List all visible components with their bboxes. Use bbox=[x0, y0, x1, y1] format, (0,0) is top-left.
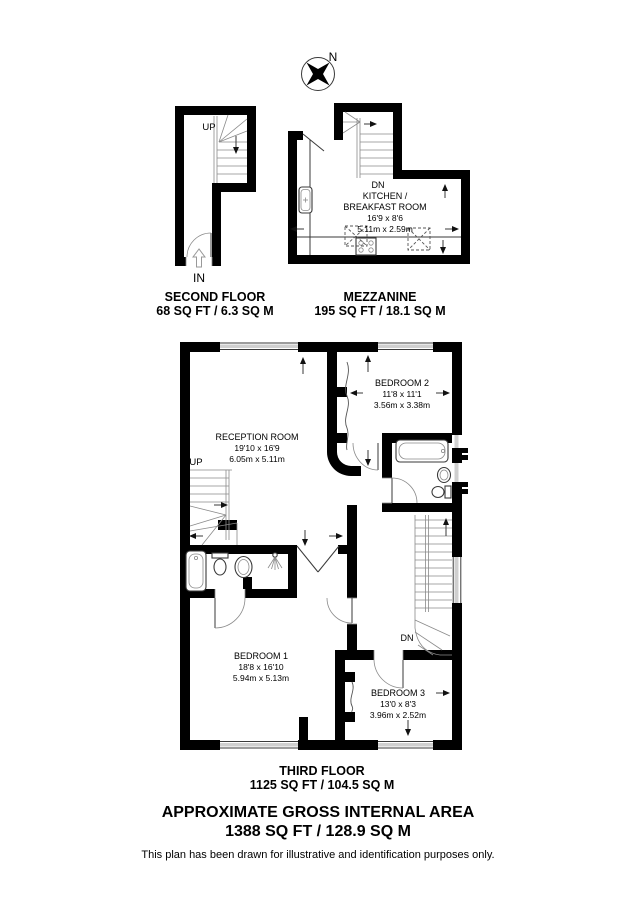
footer-area: 1388 SQ FT / 128.9 SQ M bbox=[225, 823, 411, 840]
second-floor-stairs: UP bbox=[202, 115, 247, 183]
third-floor-dn-label: DN bbox=[401, 633, 414, 643]
bedroom1-name: BEDROOM 1 bbox=[234, 651, 288, 661]
bedroom1-dims-metric: 5.94m x 5.13m bbox=[233, 673, 289, 683]
floorplan-page: N UP IN bbox=[0, 0, 636, 900]
bedroom1-door bbox=[327, 598, 357, 624]
footer-disclaimer: This plan has been drawn for illustrativ… bbox=[141, 849, 494, 861]
kitchen-dims-metric: 5.11m x 2.59m bbox=[357, 224, 413, 234]
entrance-in-label: IN bbox=[193, 271, 205, 285]
bedroom2-dims-imperial: 11'8 x 11'1 bbox=[382, 389, 422, 399]
bathtub-top bbox=[396, 440, 448, 462]
third-floor-name: THIRD FLOOR bbox=[279, 764, 364, 778]
entrance-arrow: IN bbox=[193, 249, 205, 285]
second-floor-up-label: UP bbox=[202, 122, 215, 133]
third-floor-up-stairs: UP bbox=[189, 457, 237, 545]
toilet-left bbox=[212, 553, 228, 575]
mezzanine-name: MEZZANINE bbox=[344, 290, 417, 304]
compass-rose: N bbox=[302, 50, 338, 91]
bedroom2-door bbox=[353, 443, 378, 470]
kitchen-name-line2: BREAKFAST ROOM bbox=[343, 202, 426, 212]
bathtub-left bbox=[186, 551, 206, 591]
wardrobe-front bbox=[351, 682, 353, 712]
bedroom3-dims-metric: 3.96m x 2.52m bbox=[370, 710, 426, 720]
mezzanine-dn-label: DN bbox=[372, 180, 385, 190]
reception-name: RECEPTION ROOM bbox=[215, 432, 298, 442]
right-wall-flues bbox=[462, 448, 468, 494]
entrance-opening bbox=[186, 257, 212, 266]
reception-bifold-door bbox=[297, 546, 339, 572]
bedroom2-dims-metric: 3.56m x 3.38m bbox=[374, 400, 430, 410]
stove bbox=[356, 238, 376, 255]
third-floor-up-label: UP bbox=[189, 457, 202, 468]
bedroom3-dims-imperial: 13'0 x 8'3 bbox=[380, 699, 416, 709]
bedroom2-label: BEDROOM 2 11'8 x 11'1 3.56m x 3.38m bbox=[374, 378, 430, 410]
mezzanine-area: 195 SQ FT / 18.1 SQ M bbox=[314, 304, 445, 318]
bathroom-top-door bbox=[382, 478, 417, 503]
compass-north-label: N bbox=[329, 50, 338, 64]
bedroom3-label: BEDROOM 3 13'0 x 8'3 3.96m x 2.52m bbox=[370, 688, 426, 720]
mezzanine-plan: DN bbox=[288, 103, 470, 318]
bedroom3-door bbox=[374, 650, 403, 688]
bedroom3-name: BEDROOM 3 bbox=[371, 688, 425, 698]
second-floor-plan: UP IN SECOND FLOOR 68 SQ FT / 6.3 SQ M bbox=[156, 106, 273, 318]
toilet-top bbox=[432, 486, 451, 498]
third-floor-plan: UP DN bbox=[180, 342, 468, 792]
bedroom2-name: BEDROOM 2 bbox=[375, 378, 429, 388]
mezzanine-stairs: DN bbox=[343, 112, 393, 190]
shower-head-icon bbox=[268, 553, 282, 570]
sink-top bbox=[438, 468, 451, 483]
reception-room-label: RECEPTION ROOM 19'10 x 16'9 6.05m x 5.11… bbox=[215, 432, 298, 464]
kitchen-sink bbox=[299, 187, 312, 213]
second-floor-area: 68 SQ FT / 6.3 SQ M bbox=[156, 304, 273, 318]
footer: APPROXIMATE GROSS INTERNAL AREA 1388 SQ … bbox=[141, 804, 494, 861]
third-floor-dimension-arrows bbox=[300, 355, 450, 736]
bedroom1-label: BEDROOM 1 18'8 x 16'10 5.94m x 5.13m bbox=[233, 651, 289, 683]
reception-dims-metric: 6.05m x 5.11m bbox=[229, 454, 285, 464]
floor-plan-canvas: N UP IN bbox=[0, 0, 636, 900]
bathroom-left-door bbox=[215, 589, 245, 628]
reception-dims-imperial: 19'10 x 16'9 bbox=[234, 443, 280, 453]
second-floor-name: SECOND FLOOR bbox=[165, 290, 266, 304]
kitchen-dims-imperial: 16'9 x 8'6 bbox=[367, 213, 403, 223]
third-floor-area: 1125 SQ FT / 104.5 SQ M bbox=[250, 778, 395, 792]
footer-title: APPROXIMATE GROSS INTERNAL AREA bbox=[162, 804, 475, 821]
bedroom1-dims-imperial: 18'8 x 16'10 bbox=[238, 662, 284, 672]
kitchen-name-line1: KITCHEN / bbox=[363, 191, 408, 201]
third-floor-dn-stairs: DN bbox=[401, 515, 453, 655]
sink-left bbox=[235, 557, 252, 578]
third-floor-interior-walls bbox=[190, 352, 452, 740]
mezzanine-door-leaf bbox=[303, 134, 324, 151]
